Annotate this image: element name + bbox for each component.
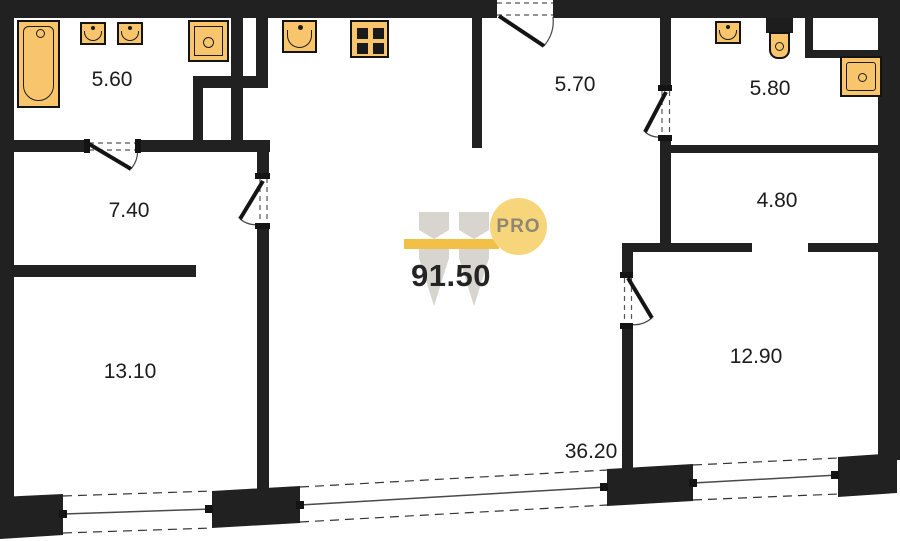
wall-bath2-left-top [660,18,671,90]
room-area-hall: 5.70 [555,73,596,97]
wall-corridor-bedroom [13,265,196,277]
room-area-bathroom-1: 5.60 [92,68,133,92]
door-bathroom-1 [84,139,141,169]
wall-storage-bottom-right [808,243,900,252]
stove-icon [350,20,389,58]
wall-left [0,18,14,502]
wall-niche-v [805,18,813,54]
wall-shaft-low-v2 [231,86,243,142]
washing-machine-icon [188,20,229,62]
logo-pro-badge: PRO [490,198,547,255]
wall-storage-bottom-left [628,243,752,252]
door-entrance [497,3,553,46]
wall-top-left [0,0,497,18]
wall-bedroom2-left-top [622,243,633,276]
room-area-bathroom-2: 5.80 [750,77,791,101]
sink-icon [715,21,741,44]
total-area-label: 91.50 [411,258,491,294]
wall-shaft-low-v1 [193,86,203,142]
wall-storage-top [660,145,900,153]
logo-accent-bar [404,239,499,249]
wall-bedroom2-left-bottom [622,325,633,470]
floorplan-canvas: PRO 91.50 5.60 7.40 13.10 5.70 5.80 4.80… [0,0,900,541]
wall-bath1-bottom-b [137,140,270,152]
wall-main-vert-bottom [257,224,269,490]
sink-icon [80,22,106,45]
wall-shaft-v2 [256,18,268,80]
logo-pro-text: PRO [496,216,540,238]
wall-hall-divider [472,18,482,148]
bathtub-icon [17,20,60,108]
wall-main-vert-top [257,152,269,178]
room-area-bedroom-left: 13.10 [104,360,157,384]
door-corridor [240,173,270,229]
room-area-storage: 4.80 [757,189,798,213]
wall-top-right [553,0,900,18]
wall-shaft-v1 [231,18,243,80]
shower-icon [840,56,882,97]
sink-icon [117,22,143,45]
room-area-bedroom-right: 12.90 [730,345,783,369]
door-bedroom-right [620,272,652,329]
door-bathroom-2 [645,85,672,141]
room-area-corridor: 7.40 [109,199,150,223]
kitchen-sink-icon [282,20,317,53]
bottom-wall-band [0,453,897,539]
room-area-living: 36.20 [565,440,618,464]
window-sill-ticks [59,471,839,518]
toilet-icon [766,18,793,60]
wall-bath1-bottom-a [0,140,88,152]
